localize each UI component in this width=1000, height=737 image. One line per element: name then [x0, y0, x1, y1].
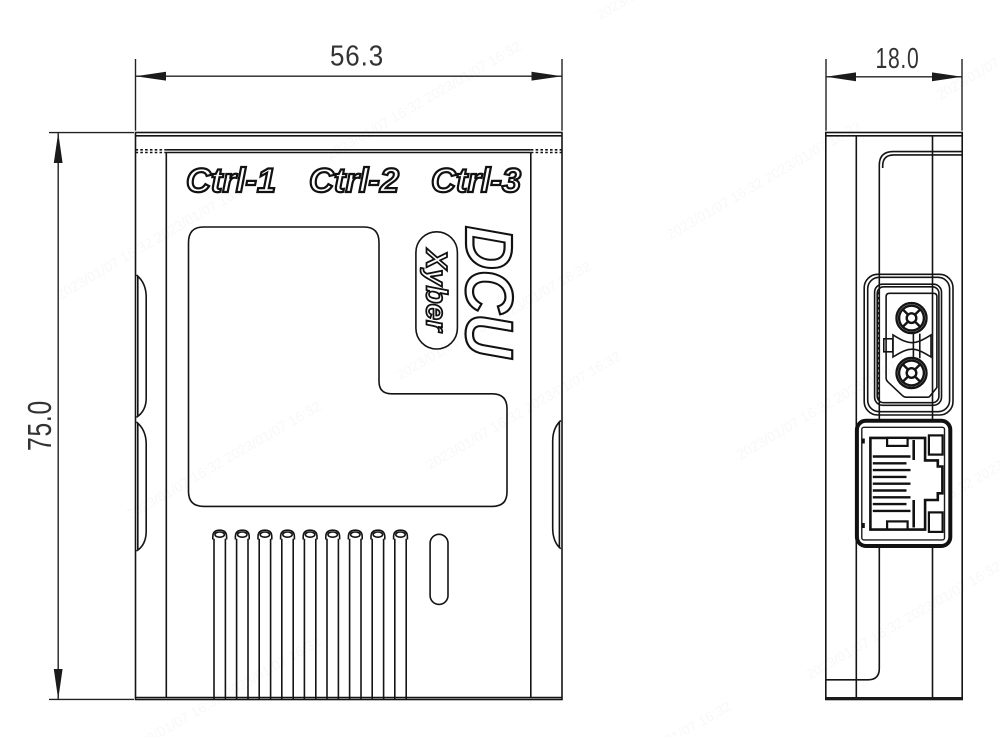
svg-text:DCU: DCU	[451, 226, 526, 359]
svg-text:75.0: 75.0	[21, 400, 58, 451]
svg-text:Ctrl-1: Ctrl-1	[186, 162, 276, 200]
svg-text:56.3: 56.3	[330, 41, 384, 73]
svg-text:Ctrl-3: Ctrl-3	[431, 162, 521, 200]
svg-text:Ctrl-2: Ctrl-2	[309, 162, 399, 200]
svg-text:Xyber: Xyber	[420, 248, 453, 334]
svg-text:18.0: 18.0	[876, 43, 920, 75]
